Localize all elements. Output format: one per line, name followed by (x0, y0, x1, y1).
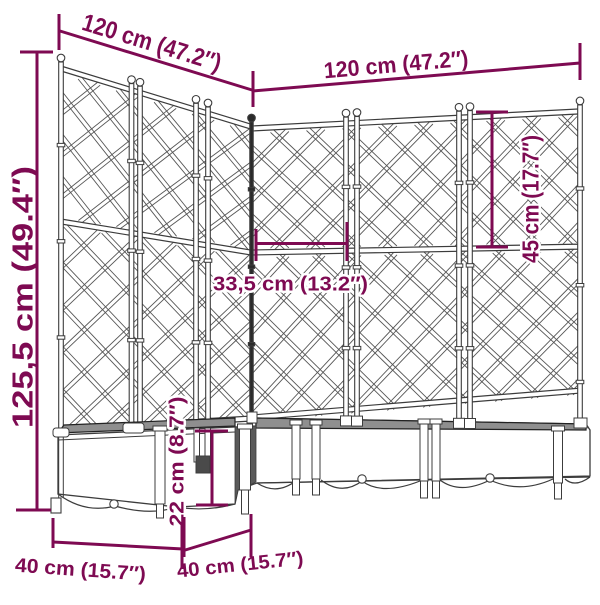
svg-text:45 cm (17.7″): 45 cm (17.7″) (517, 135, 543, 263)
svg-text:33,5 cm (13.2″): 33,5 cm (13.2″) (213, 272, 368, 295)
svg-text:125,5 cm (49.4″): 125,5 cm (49.4″) (7, 166, 39, 428)
svg-text:22 cm (8.7″): 22 cm (8.7″) (167, 397, 189, 527)
